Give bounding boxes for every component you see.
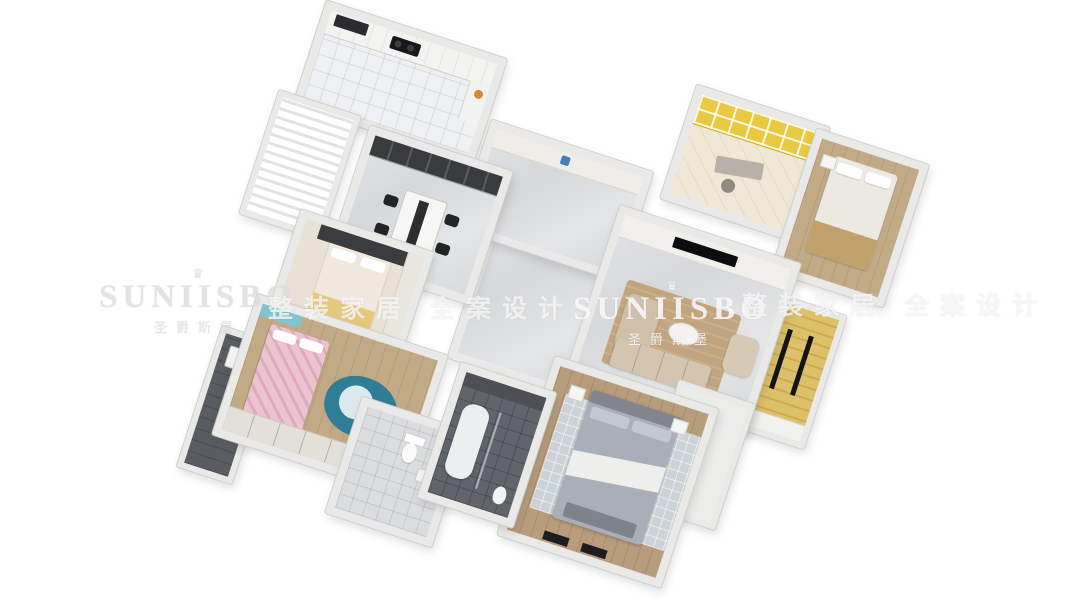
framed-art	[580, 543, 608, 560]
floorplan-render: ♛ SUNIISBO 圣爵斯堡 ♛ SUNIISBO 圣爵斯堡 整装家居 全案设…	[0, 0, 1080, 608]
white-throw-blanket	[565, 450, 666, 493]
teal-curtain	[259, 304, 303, 328]
bathtub	[442, 401, 492, 482]
burner-icon	[406, 44, 415, 53]
dining-chair	[443, 213, 460, 228]
toilet	[491, 485, 509, 506]
dining-chair	[383, 193, 400, 208]
pillow	[298, 337, 324, 354]
pillow	[272, 329, 298, 346]
desk	[714, 155, 764, 180]
blanket	[805, 220, 878, 271]
kitchen-side-counter	[458, 81, 490, 126]
yellow-bookshelf	[693, 94, 821, 162]
desk-chair	[719, 177, 737, 195]
bed-bench	[562, 502, 637, 539]
balcony-cabinet	[745, 408, 805, 442]
pillow	[330, 247, 357, 264]
pillow	[835, 162, 863, 180]
framed-art	[542, 530, 570, 547]
bed	[805, 155, 899, 271]
pillow	[864, 171, 892, 189]
dining-chair	[434, 242, 451, 257]
pillow	[359, 256, 386, 273]
burner-icon	[394, 40, 403, 49]
drying-rack	[790, 336, 814, 397]
